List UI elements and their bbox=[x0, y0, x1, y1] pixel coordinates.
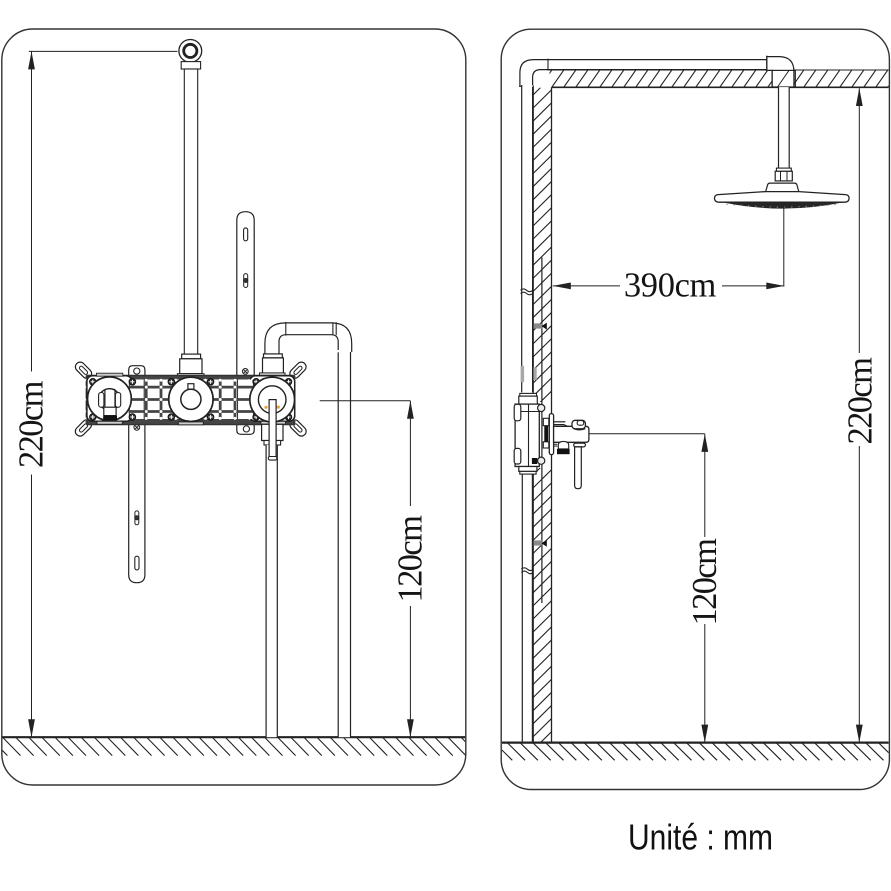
svg-text:Unité : mm: Unité : mm bbox=[628, 817, 773, 858]
svg-text:120cm: 120cm bbox=[686, 536, 724, 626]
svg-text:220cm: 220cm bbox=[842, 355, 880, 445]
svg-text:120cm: 120cm bbox=[392, 513, 430, 603]
svg-text:390cm: 390cm bbox=[624, 267, 719, 305]
svg-text:220cm: 220cm bbox=[13, 378, 51, 468]
